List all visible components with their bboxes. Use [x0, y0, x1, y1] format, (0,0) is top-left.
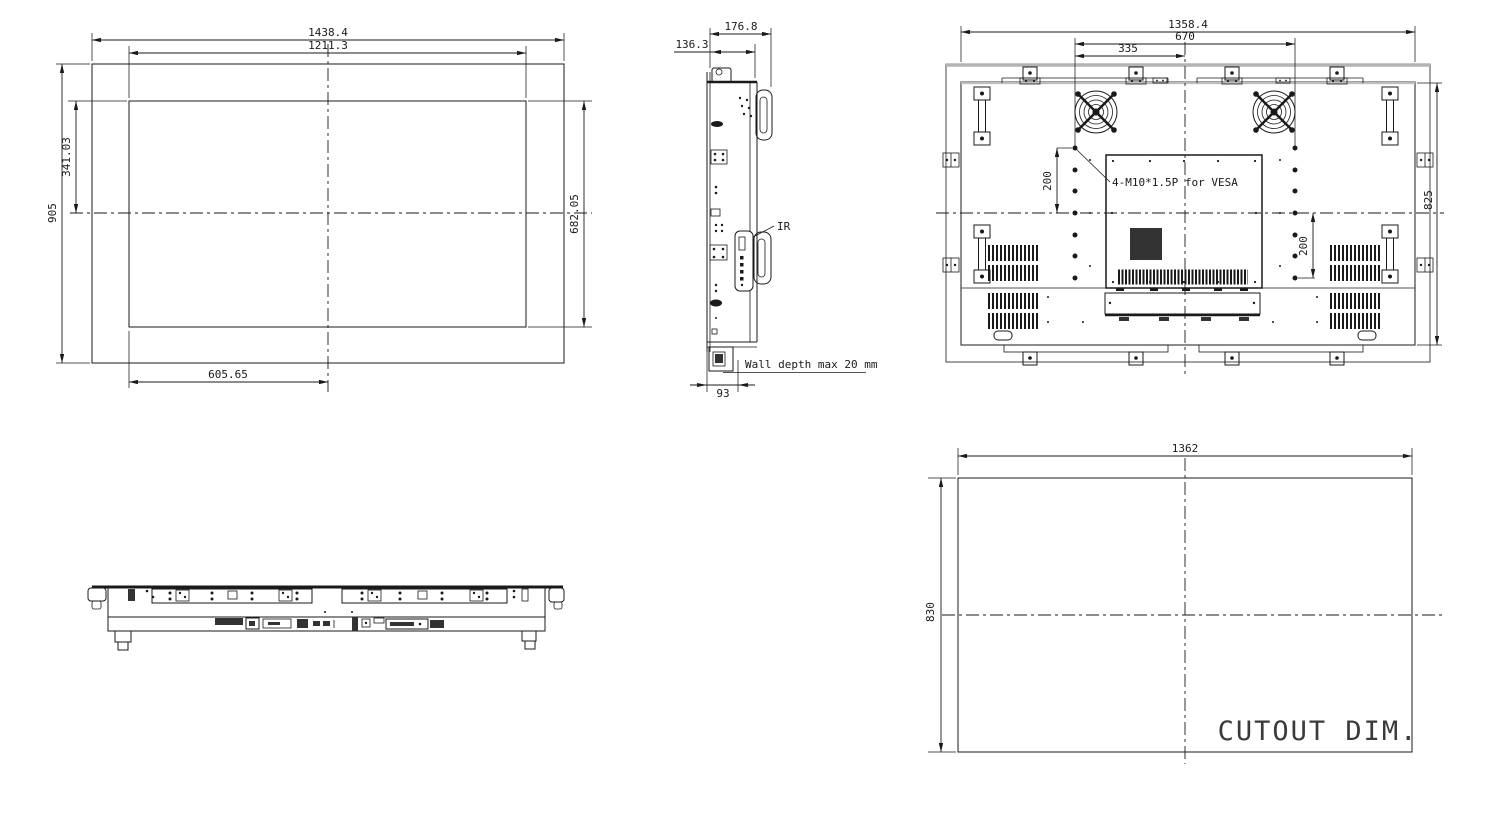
- dim-front-overall-width: 1438.4: [308, 26, 348, 39]
- bottom-screw-panel-left: [152, 589, 312, 603]
- ir-receiver: [735, 231, 753, 291]
- dim-front-half-panel-height: 341.03: [60, 137, 73, 177]
- rear-handle: [1382, 87, 1398, 145]
- dim-front-overall-height: 905: [46, 203, 59, 223]
- top-bracket: [1020, 67, 1040, 84]
- bottom-bracket: [1129, 352, 1143, 365]
- front-view-dimensions: 1438.4 1211.3 905 341.03 682.05 605.65: [46, 26, 592, 388]
- bottom-screw-panel-right: [342, 589, 507, 603]
- rear-view: 1358.4 670 335 200 200 825 4-M10*1.5P: [936, 18, 1444, 378]
- label-vesa-note: 4-M10*1.5P for VESA: [1112, 176, 1238, 189]
- dim-front-panel-height: 682.05: [568, 194, 581, 234]
- rear-handle: [1382, 225, 1398, 283]
- cooling-fan-left: [1075, 91, 1117, 133]
- side-view-body: [707, 68, 757, 371]
- bottom-view: [88, 587, 564, 650]
- top-bracket: [1126, 67, 1146, 84]
- dim-front-half-panel-width: 605.65: [208, 368, 248, 381]
- cutout-view: 1362 830 CUTOUT DIM.: [924, 442, 1446, 764]
- rear-handle: [974, 225, 990, 283]
- port-block: [297, 619, 308, 628]
- label-ir: IR: [777, 220, 791, 233]
- side-view-port-marks: [710, 97, 752, 334]
- heatsink-block: [1130, 228, 1162, 260]
- dim-side-body-depth: 136.3: [675, 38, 708, 51]
- rear-handle: [974, 87, 990, 145]
- side-view: 176.8 136.3 IR Wall depth max 20 mm 93: [674, 20, 878, 400]
- dim-rear-body-height: 825: [1422, 190, 1435, 210]
- dim-cutout-height: 830: [924, 602, 937, 622]
- bottom-bracket: [1330, 352, 1344, 365]
- top-bracket: [1327, 67, 1347, 84]
- side-view-handle-top: [756, 90, 772, 140]
- front-view: 1438.4 1211.3 905 341.03 682.05 605.65: [46, 26, 592, 392]
- vesa-bolt-pattern: [1047, 146, 1318, 324]
- dim-side-total-depth: 176.8: [724, 20, 757, 33]
- rear-plug-right: [1358, 331, 1376, 340]
- dim-vesa-width: 670: [1175, 30, 1195, 43]
- bottom-bracket: [1023, 352, 1037, 365]
- dim-cutout-width: 1362: [1172, 442, 1199, 455]
- display-dimension-drawing: 1438.4 1211.3 905 341.03 682.05 605.65: [0, 0, 1505, 826]
- technical-drawing-canvas: 1438.4 1211.3 905 341.03 682.05 605.65: [0, 0, 1505, 826]
- dim-vesa-half-width: 335: [1118, 42, 1138, 55]
- rear-view-mount-rails: [1002, 67, 1363, 365]
- dim-front-panel-width: 1211.3: [308, 39, 348, 52]
- top-bracket: [1222, 67, 1242, 84]
- bottom-view-outline: [88, 587, 564, 650]
- dim-side-mount-depth: 93: [716, 387, 729, 400]
- label-wall-depth-note: Wall depth max 20 mm: [745, 358, 878, 371]
- cutout-title: CUTOUT DIM.: [1218, 716, 1419, 747]
- front-view-centerlines: [70, 44, 592, 392]
- side-view-dimensions: 176.8 136.3 IR Wall depth max 20 mm 93: [674, 20, 878, 400]
- rear-plug-left: [994, 331, 1012, 340]
- dim-vesa-lower: 200: [1297, 236, 1310, 256]
- bottom-bracket: [1225, 352, 1239, 365]
- dim-vesa-upper: 200: [1041, 171, 1054, 191]
- cutout-dimensions: 1362 830: [924, 442, 1412, 752]
- connector-panel: [215, 617, 444, 631]
- cooling-fan-right: [1253, 91, 1295, 133]
